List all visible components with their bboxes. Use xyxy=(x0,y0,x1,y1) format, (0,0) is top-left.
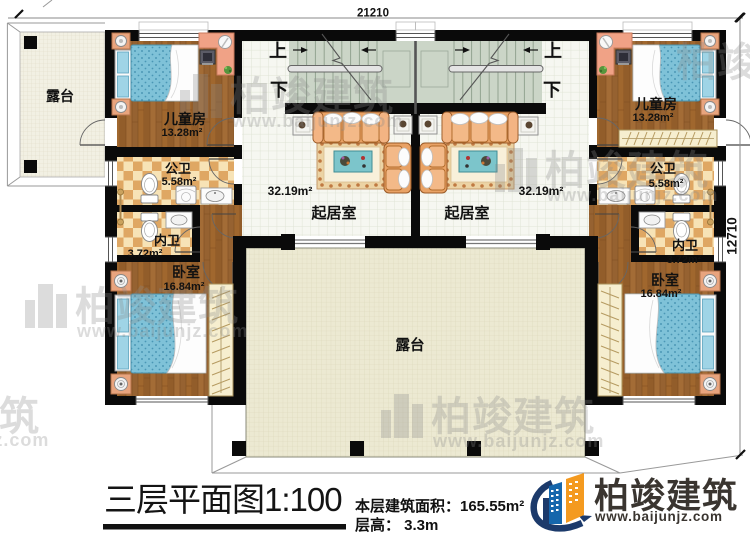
svg-text:16.84m²: 16.84m² xyxy=(164,281,205,293)
svg-text:下: 下 xyxy=(543,80,561,100)
svg-text:卧室: 卧室 xyxy=(651,272,679,288)
svg-text:12710: 12710 xyxy=(725,217,740,255)
svg-text:16.84m²: 16.84m² xyxy=(641,288,682,300)
svg-text:13.28m²: 13.28m² xyxy=(162,127,203,139)
svg-text:内卫: 内卫 xyxy=(154,233,180,248)
svg-text:www.baijunjz.com: www.baijunjz.com xyxy=(231,111,403,131)
svg-text:5.58m²: 5.58m² xyxy=(162,176,197,188)
svg-text:儿童房: 儿童房 xyxy=(634,96,677,112)
svg-text:www.baijunjz.com: www.baijunjz.com xyxy=(546,185,718,205)
svg-text:层高： 3.3m: 层高： 3.3m xyxy=(355,516,438,534)
svg-text:起居室: 起居室 xyxy=(310,204,356,222)
svg-text:公卫: 公卫 xyxy=(165,161,191,176)
svg-text:卧室: 卧室 xyxy=(172,264,200,280)
svg-text:下: 下 xyxy=(270,80,288,100)
svg-text:www.baijunjz.com: www.baijunjz.com xyxy=(432,431,604,451)
svg-text:13.28m²: 13.28m² xyxy=(633,112,674,124)
svg-text:32.19m²: 32.19m² xyxy=(268,184,313,198)
svg-text:5.58m²: 5.58m² xyxy=(649,178,684,190)
svg-text:三层平面图1:100: 三层平面图1:100 xyxy=(104,481,342,518)
svg-text:柏竣建筑: 柏竣建筑 xyxy=(676,41,750,85)
svg-text:公卫: 公卫 xyxy=(650,161,676,176)
svg-text:本层建筑面积：165.55m²: 本层建筑面积：165.55m² xyxy=(355,497,524,515)
svg-text:上: 上 xyxy=(269,41,287,61)
svg-text:露台: 露台 xyxy=(46,88,74,104)
svg-text:上: 上 xyxy=(544,41,562,61)
svg-text:儿童房: 儿童房 xyxy=(163,111,206,127)
svg-text:www.baijunjz.com: www.baijunjz.com xyxy=(76,321,248,341)
svg-text:起居室: 起居室 xyxy=(443,204,489,222)
svg-text:3.72m²: 3.72m² xyxy=(667,254,702,266)
svg-text:3.72m²: 3.72m² xyxy=(128,248,163,260)
svg-text:www.baijunjz.com: www.baijunjz.com xyxy=(594,509,723,524)
svg-text:32.19m²: 32.19m² xyxy=(519,184,564,198)
svg-text:21210: 21210 xyxy=(357,8,389,20)
svg-text:www.baijunjz.com: www.baijunjz.com xyxy=(0,430,49,450)
svg-text:内卫: 内卫 xyxy=(672,238,698,253)
svg-text:露台: 露台 xyxy=(396,336,425,354)
